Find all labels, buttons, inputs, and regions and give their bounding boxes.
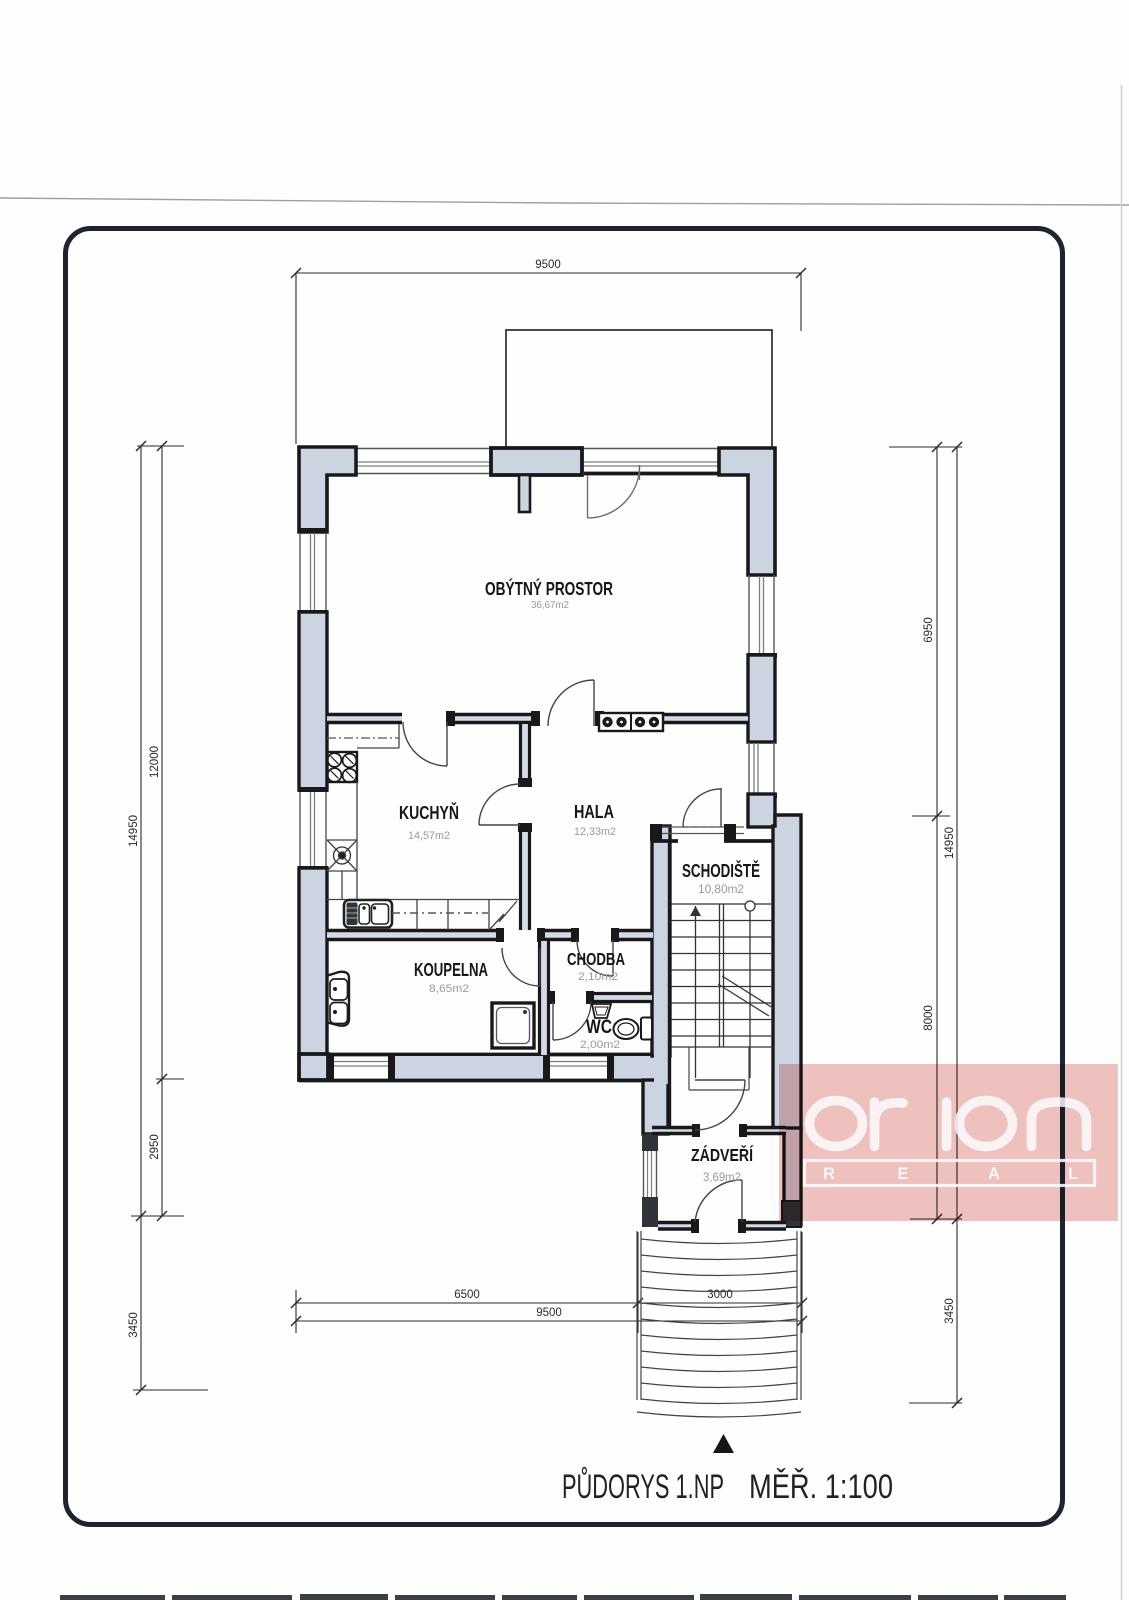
svg-text:2,00m2: 2,00m2 xyxy=(580,1039,620,1051)
svg-text:14,57m2: 14,57m2 xyxy=(408,830,450,842)
svg-text:12,33m2: 12,33m2 xyxy=(574,826,616,838)
svg-text:2,10m2: 2,10m2 xyxy=(578,971,618,983)
svg-text:14950: 14950 xyxy=(944,827,956,859)
svg-text:E: E xyxy=(897,1165,908,1183)
svg-text:A: A xyxy=(988,1165,1000,1183)
svg-text:36,67m2: 36,67m2 xyxy=(531,599,569,611)
svg-text:3000: 3000 xyxy=(707,1289,733,1301)
svg-text:10,80m2: 10,80m2 xyxy=(698,882,744,896)
svg-text:9500: 9500 xyxy=(536,1307,562,1319)
svg-text:HALA: HALA xyxy=(574,802,614,822)
svg-text:2950: 2950 xyxy=(149,1134,161,1160)
svg-text:MĚŘ. 1:100: MĚŘ. 1:100 xyxy=(749,1468,893,1506)
svg-text:R: R xyxy=(823,1165,835,1183)
svg-text:3,69m2: 3,69m2 xyxy=(703,1172,741,1184)
svg-text:6950: 6950 xyxy=(923,617,935,643)
svg-text:SCHODIŠTĚ: SCHODIŠTĚ xyxy=(682,860,760,881)
svg-text:ZÁDVEŘÍ: ZÁDVEŘÍ xyxy=(691,1144,754,1165)
svg-text:8000: 8000 xyxy=(923,1005,935,1031)
svg-text:3450: 3450 xyxy=(128,1312,140,1338)
svg-text:9500: 9500 xyxy=(535,259,561,271)
svg-text:CHODBA: CHODBA xyxy=(567,949,625,969)
svg-text:12000: 12000 xyxy=(149,746,161,778)
svg-text:WC: WC xyxy=(586,1017,612,1038)
svg-text:6500: 6500 xyxy=(454,1289,480,1301)
svg-text:L: L xyxy=(1068,1165,1078,1183)
svg-text:14950: 14950 xyxy=(128,815,140,847)
svg-text:8,65m2: 8,65m2 xyxy=(429,983,469,995)
svg-text:OBÝTNÝ PROSTOR: OBÝTNÝ PROSTOR xyxy=(485,578,613,599)
svg-text:KUCHYŇ: KUCHYŇ xyxy=(399,802,459,823)
svg-text:3450: 3450 xyxy=(944,1298,956,1324)
svg-text:PŮDORYS 1.NP: PŮDORYS 1.NP xyxy=(562,1467,724,1506)
svg-text:KOUPELNA: KOUPELNA xyxy=(414,960,488,980)
